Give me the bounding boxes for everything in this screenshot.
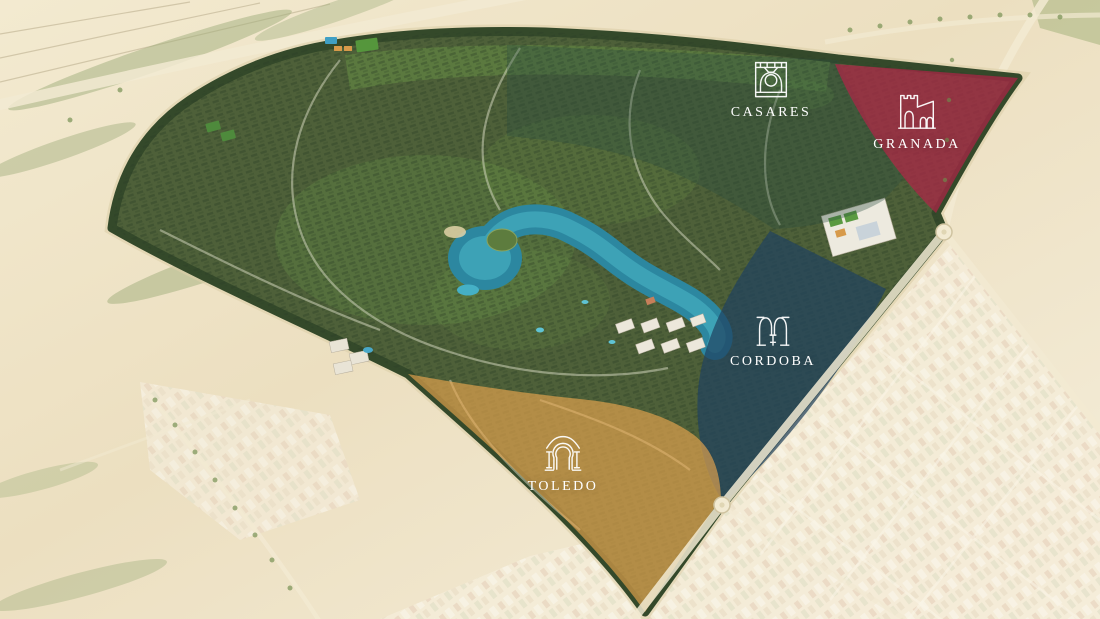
zone-label-toledo[interactable]: TOLEDO: [493, 428, 633, 495]
zone-name: CORDOBA: [730, 354, 816, 370]
zone-name: CASARES: [731, 105, 812, 121]
zone-label-granada[interactable]: GRANADA: [847, 86, 987, 153]
zone-label-casares[interactable]: CASARES: [701, 54, 841, 121]
lake-island: [487, 229, 517, 251]
zone-label-cordoba[interactable]: CORDOBA: [703, 303, 843, 370]
masterplan-map: CASARES GRANADA CORDOBA TOLEDO: [0, 0, 1100, 619]
zone-name: GRANADA: [873, 137, 961, 153]
castle-icon: [894, 86, 940, 132]
double-arch-icon: [750, 303, 796, 349]
horseshoe-arch-icon: [540, 428, 586, 474]
bridge-arch-icon: [748, 54, 794, 100]
zone-name: TOLEDO: [528, 479, 599, 495]
